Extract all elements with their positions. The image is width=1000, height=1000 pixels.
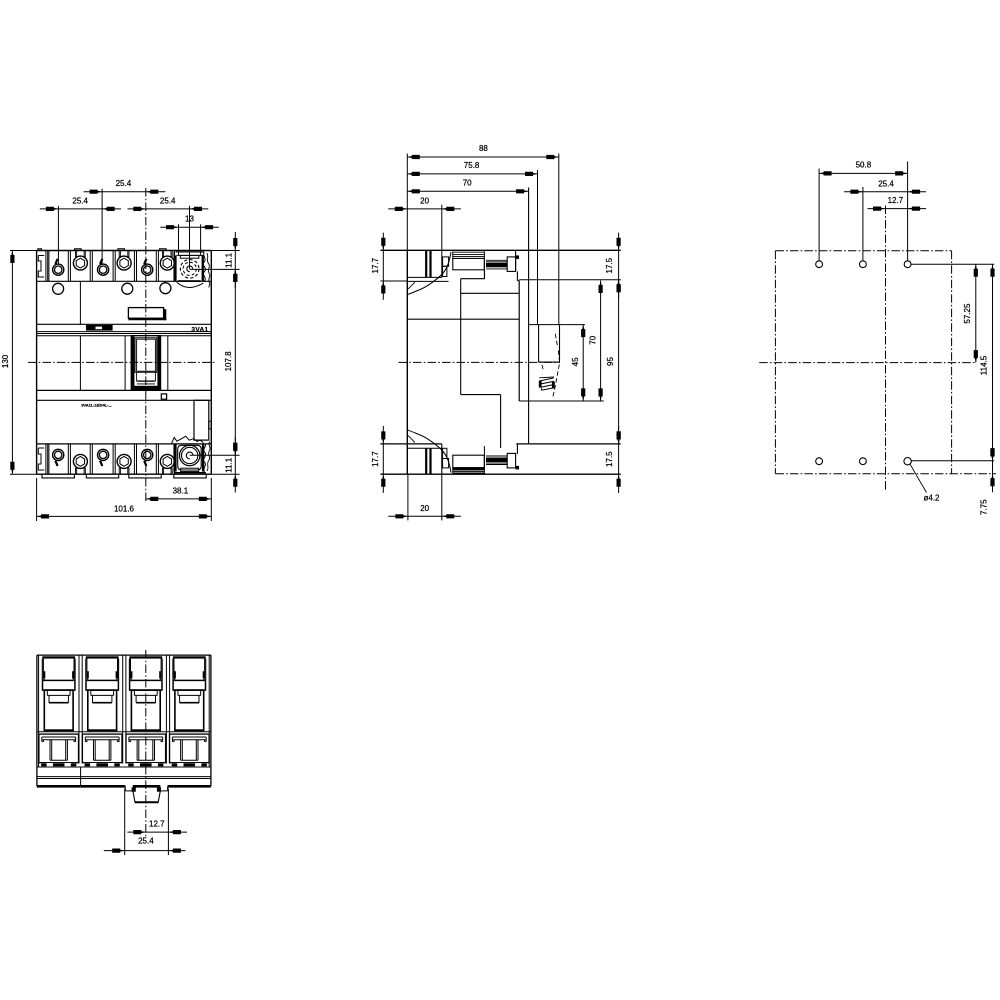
svg-text:11.1: 11.1 [225,457,234,473]
svg-text:7.75: 7.75 [980,499,989,515]
svg-text:75.8: 75.8 [464,161,480,170]
svg-text:17.5: 17.5 [605,257,614,273]
svg-text:70: 70 [463,179,472,188]
svg-text:17.7: 17.7 [371,451,380,467]
svg-text:11.1: 11.1 [225,252,234,268]
svg-text:17.7: 17.7 [371,257,380,273]
svg-text:107.8: 107.8 [224,351,233,372]
svg-text:3VA1L-1ED4L-...: 3VA1L-1ED4L-... [81,402,112,407]
svg-text:12.7: 12.7 [888,196,904,205]
svg-text:ø4.2: ø4.2 [923,493,940,502]
svg-text:3VA1: 3VA1 [191,326,208,333]
svg-text:25.4: 25.4 [878,179,894,188]
svg-text:95: 95 [606,357,615,366]
svg-text:70: 70 [588,335,597,344]
svg-text:17.5: 17.5 [605,451,614,467]
svg-text:25.4: 25.4 [116,179,132,188]
svg-text:101.6: 101.6 [114,504,135,513]
svg-text:88: 88 [479,144,488,153]
svg-text:57.25: 57.25 [963,303,972,324]
svg-text:20: 20 [420,196,429,205]
svg-text:38.1: 38.1 [173,487,189,496]
svg-text:114.5: 114.5 [980,355,989,375]
svg-text:25.4: 25.4 [160,197,176,206]
svg-text:13: 13 [185,215,194,224]
svg-text:25.4: 25.4 [72,197,88,206]
svg-text:12.7: 12.7 [149,820,165,829]
svg-text:25.4: 25.4 [138,837,154,846]
svg-text:20: 20 [420,504,429,513]
svg-text:45: 45 [571,357,580,366]
svg-text:130: 130 [1,354,10,368]
svg-text:50.8: 50.8 [856,161,872,170]
